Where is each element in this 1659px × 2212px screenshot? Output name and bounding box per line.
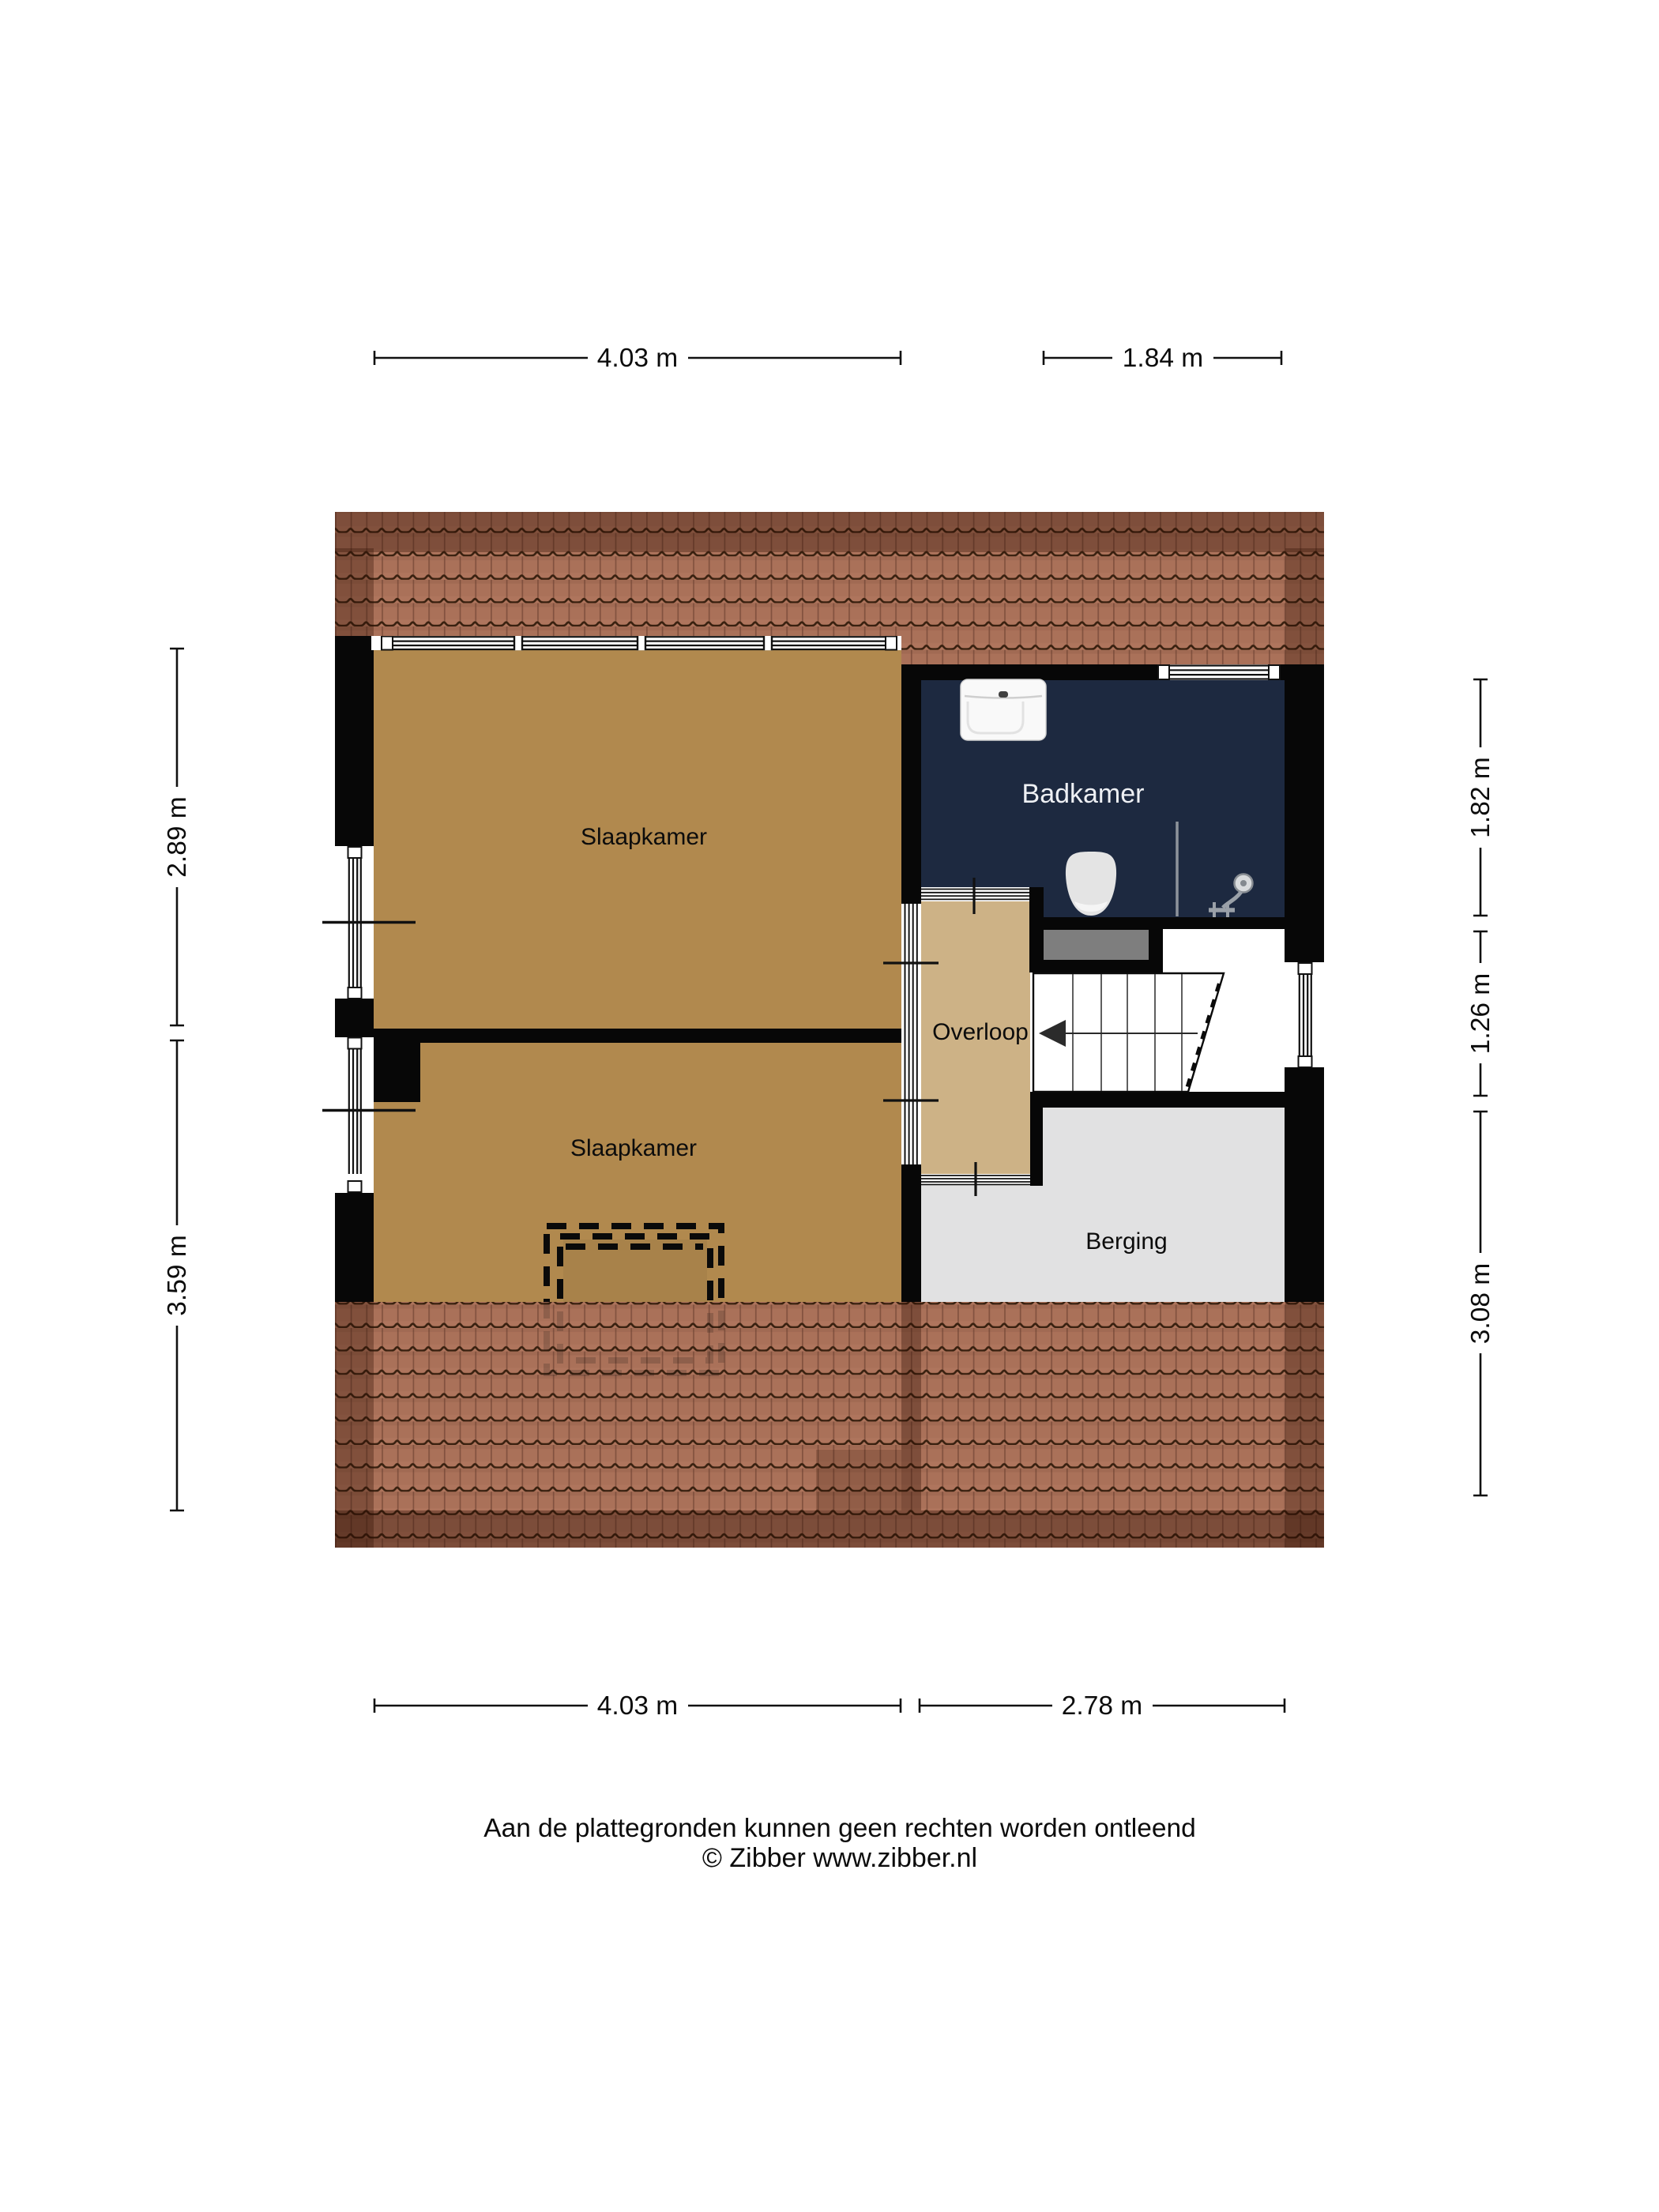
svg-text:Slaapkamer: Slaapkamer bbox=[570, 1135, 697, 1161]
svg-text:3.59 m: 3.59 m bbox=[163, 1235, 192, 1315]
svg-text:© Zibber www.zibber.nl: © Zibber www.zibber.nl bbox=[702, 1843, 977, 1873]
svg-text:4.03 m: 4.03 m bbox=[597, 1691, 678, 1721]
svg-text:Aan de plattegronden kunnen ge: Aan de plattegronden kunnen geen rechten… bbox=[483, 1814, 1196, 1843]
svg-text:1.26 m: 1.26 m bbox=[1466, 973, 1495, 1054]
svg-text:2.89 m: 2.89 m bbox=[163, 796, 192, 877]
svg-text:1.82 m: 1.82 m bbox=[1466, 757, 1495, 837]
svg-text:4.03 m: 4.03 m bbox=[597, 344, 678, 373]
svg-text:Berging: Berging bbox=[1085, 1228, 1167, 1255]
svg-text:Overloop: Overloop bbox=[932, 1019, 1029, 1045]
svg-text:Badkamer: Badkamer bbox=[1022, 779, 1145, 809]
svg-text:Slaapkamer: Slaapkamer bbox=[581, 824, 707, 850]
svg-text:1.84 m: 1.84 m bbox=[1123, 344, 1203, 373]
svg-text:3.08 m: 3.08 m bbox=[1466, 1263, 1495, 1344]
svg-text:2.78 m: 2.78 m bbox=[1062, 1691, 1142, 1721]
